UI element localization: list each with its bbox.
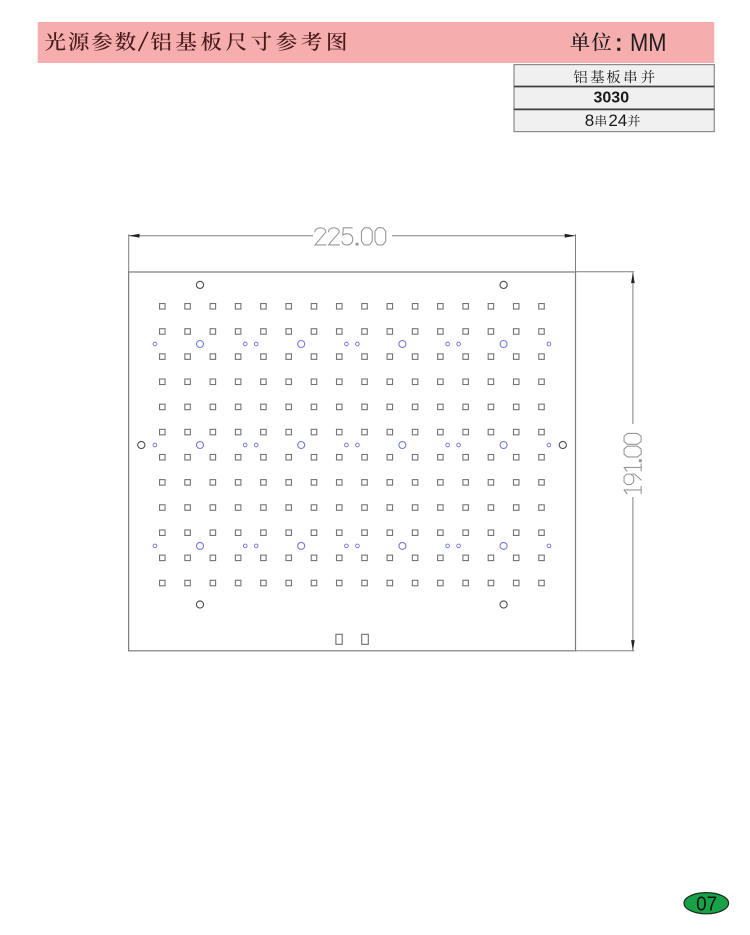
svg-text:MM: MM <box>630 29 667 57</box>
svg-text:8: 8 <box>585 111 594 130</box>
svg-text:07: 07 <box>696 892 717 915</box>
svg-text:24: 24 <box>608 111 627 130</box>
svg-text:3030: 3030 <box>594 90 630 107</box>
